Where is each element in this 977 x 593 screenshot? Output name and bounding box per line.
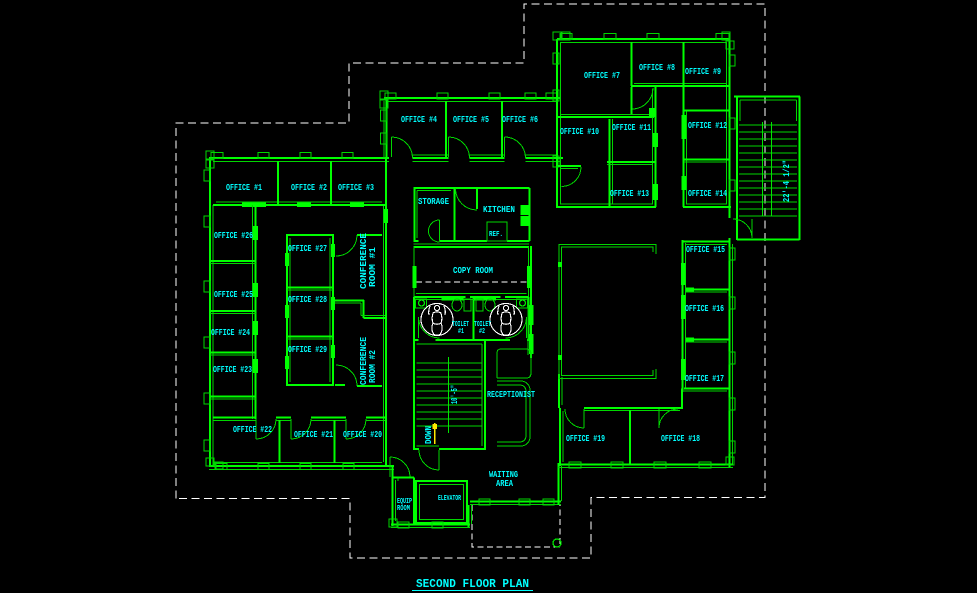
svg-text:OFFICE #10: OFFICE #10 [560, 127, 599, 137]
svg-text:STORAGE: STORAGE [418, 197, 449, 207]
svg-text:OFFICE #11: OFFICE #11 [612, 123, 651, 133]
svg-text:AREA: AREA [496, 479, 513, 489]
svg-text:OFFICE #1: OFFICE #1 [226, 183, 262, 193]
svg-text:OFFICE #26: OFFICE #26 [214, 231, 253, 241]
svg-text:ROOM #2: ROOM #2 [368, 350, 378, 383]
svg-text:SECOND FLOOR PLAN: SECOND FLOOR PLAN [416, 577, 529, 591]
svg-text:OFFICE #3: OFFICE #3 [338, 183, 374, 193]
svg-text:ROOM #1: ROOM #1 [368, 246, 378, 287]
svg-text:REF.: REF. [489, 231, 503, 239]
svg-text:OFFICE #21: OFFICE #21 [294, 430, 333, 440]
svg-text:OFFICE #6: OFFICE #6 [502, 115, 538, 125]
svg-text:OFFICE #12: OFFICE #12 [688, 121, 727, 131]
svg-text:OFFICE #27: OFFICE #27 [288, 244, 327, 254]
svg-text:OFFICE #4: OFFICE #4 [401, 115, 437, 125]
svg-text:OFFICE #5: OFFICE #5 [453, 115, 489, 125]
svg-text:OFFICE #23: OFFICE #23 [213, 365, 252, 375]
svg-text:OFFICE #17: OFFICE #17 [685, 374, 724, 384]
svg-text:OFFICE #16: OFFICE #16 [685, 304, 724, 314]
svg-text:OFFICE #7: OFFICE #7 [584, 71, 620, 81]
svg-text:#1: #1 [458, 328, 464, 336]
svg-text:OFFICE #14: OFFICE #14 [688, 189, 727, 199]
svg-text:OFFICE #8: OFFICE #8 [639, 63, 675, 73]
svg-text:RECEPTIONIST: RECEPTIONIST [487, 390, 535, 400]
svg-text:OFFICE #18: OFFICE #18 [661, 434, 700, 444]
svg-text:OFFICE #19: OFFICE #19 [566, 434, 605, 444]
svg-text:ELEVATOR: ELEVATOR [438, 495, 461, 503]
svg-text:22'-4 1/2": 22'-4 1/2" [782, 160, 792, 202]
svg-text:OFFICE #25: OFFICE #25 [214, 290, 253, 300]
svg-text:OFFICE #24: OFFICE #24 [211, 328, 250, 338]
svg-text:ROOM: ROOM [397, 505, 410, 513]
svg-text:OFFICE #15: OFFICE #15 [686, 245, 725, 255]
svg-text:COPY ROOM: COPY ROOM [453, 266, 493, 276]
svg-text:OFFICE #9: OFFICE #9 [685, 67, 721, 77]
svg-text:10'-5": 10'-5" [450, 385, 460, 404]
svg-text:OFFICE #28: OFFICE #28 [288, 295, 327, 305]
svg-text:#2: #2 [479, 328, 485, 336]
svg-text:OFFICE #22: OFFICE #22 [233, 425, 272, 435]
svg-text:OFFICE #29: OFFICE #29 [288, 345, 327, 355]
svg-text:OFFICE #13: OFFICE #13 [610, 189, 649, 199]
svg-text:KITCHEN: KITCHEN [483, 205, 515, 215]
svg-text:OFFICE #2: OFFICE #2 [291, 183, 327, 193]
svg-text:OFFICE #20: OFFICE #20 [343, 430, 382, 440]
